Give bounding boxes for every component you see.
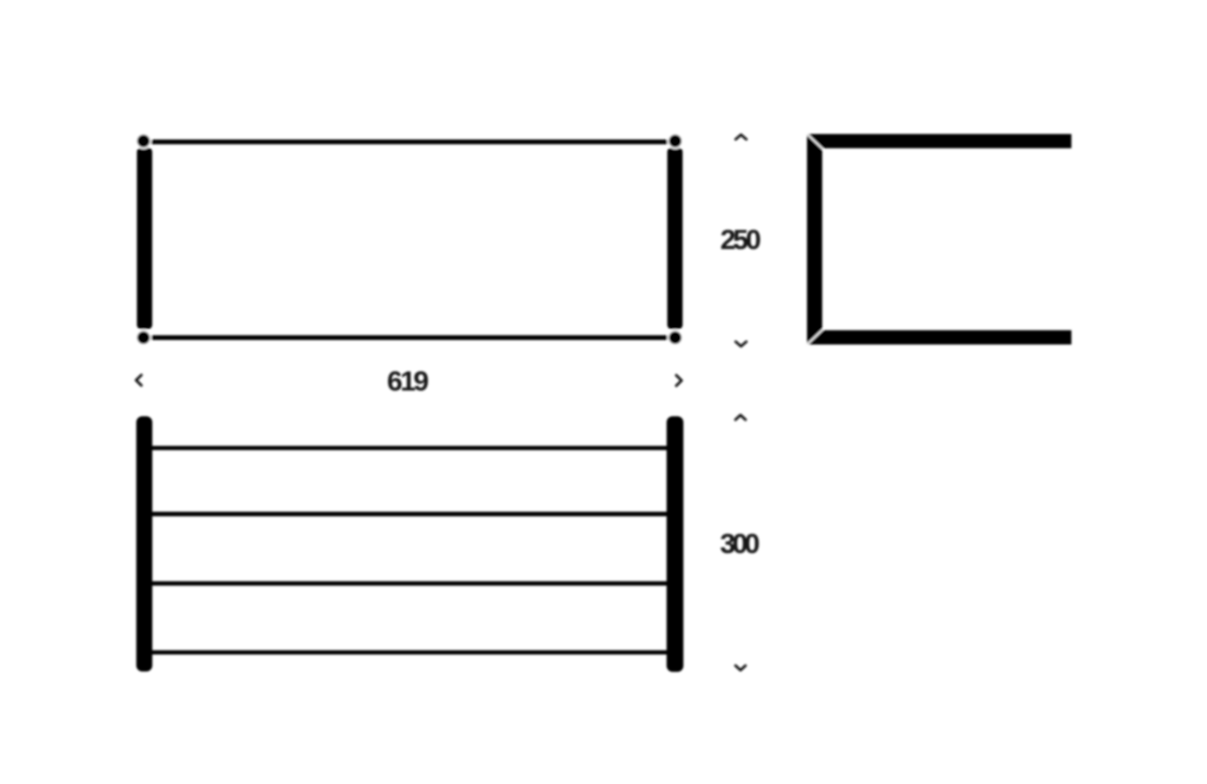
- svg-text:300: 300: [720, 528, 760, 559]
- svg-text:619: 619: [387, 366, 429, 397]
- svg-text:250: 250: [720, 224, 761, 255]
